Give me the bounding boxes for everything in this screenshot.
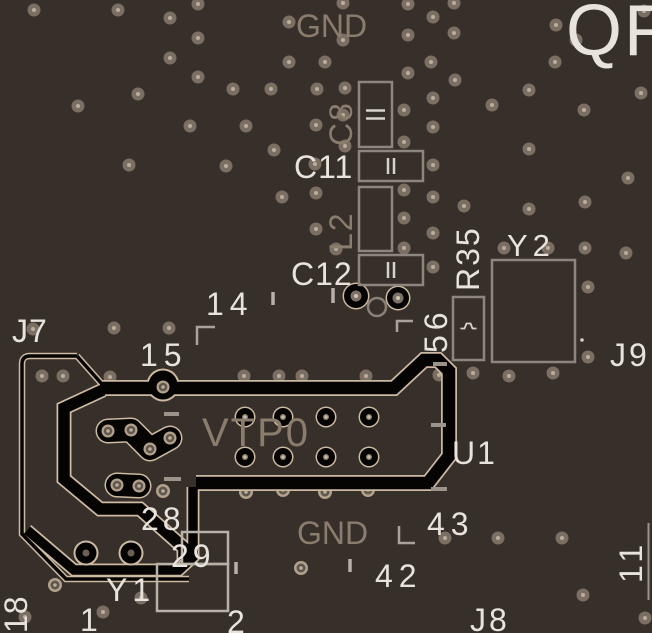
via-hole (314, 123, 318, 127)
via-hole (553, 60, 557, 64)
via-hole (431, 15, 435, 19)
silk-label-r35: R35 (450, 226, 486, 291)
via-hole (196, 36, 200, 40)
via-hole (554, 23, 558, 27)
via-hole (323, 60, 327, 64)
silk-label-j8: J8 (470, 602, 510, 633)
via-hole (168, 16, 172, 20)
via-hole (507, 374, 511, 378)
via-hole (406, 71, 410, 75)
via-hole (242, 374, 246, 378)
via-hole (137, 484, 141, 488)
via-hole (167, 326, 171, 330)
silk-label-j7: J7 (12, 313, 48, 349)
via-hole (196, 2, 200, 6)
via-hole (196, 75, 200, 79)
via-hole (643, 616, 647, 620)
via-hole (452, 31, 456, 35)
via-hole (161, 385, 165, 389)
via-hole (431, 265, 435, 269)
via-hole (341, 1, 345, 5)
silk-label-y2: Y2 (507, 228, 555, 263)
via-hole (431, 96, 435, 100)
via-hole (527, 88, 531, 92)
via-hole (431, 231, 435, 235)
silk-label-vtp0: VTP0 (202, 411, 310, 455)
silk-label-n14: 14 (206, 286, 254, 322)
silk-label-n29: 29 (171, 538, 215, 574)
silk-label-n2: 2 (227, 604, 245, 633)
silk-label-n42: 42 (375, 558, 423, 594)
via-hole (402, 140, 406, 144)
pad-hole (324, 455, 327, 458)
via-hole (453, 78, 457, 82)
via-hole (224, 164, 228, 168)
silk-label-j9: J9 (610, 337, 650, 373)
via-hole (300, 374, 304, 378)
via-hole (431, 163, 435, 167)
silk-label-gnd-top: GND (296, 8, 367, 44)
via-hole (108, 375, 112, 379)
via-hole (277, 374, 281, 378)
via-hole (626, 176, 630, 180)
silk-label-c11: C11 (294, 149, 353, 185)
via-hole (496, 536, 500, 540)
via-hole (129, 428, 133, 432)
pad-hole (367, 415, 370, 418)
via-hole (431, 125, 435, 129)
via-hole (583, 246, 587, 250)
via-hole (560, 536, 564, 540)
pcb-layout-view[interactable]: QFGNDC8C11L2C12R3556Y2J91415J7VTP0U1GND4… (0, 0, 652, 633)
via-hole (471, 371, 475, 375)
silk-label-gnd-bottom: GND (297, 515, 368, 551)
via-hole (406, 2, 410, 6)
via-hole (462, 204, 466, 208)
silk-label-n56: 56 (418, 307, 454, 353)
via-hole (287, 60, 291, 64)
silk-label-c12: C12 (291, 256, 353, 292)
pad-via-hole (396, 296, 400, 300)
via-hole (101, 610, 105, 614)
via-hole (429, 60, 433, 64)
via-hole (314, 227, 318, 231)
via-hole (61, 374, 65, 378)
silk-label-u1: U1 (452, 435, 497, 471)
via-hole (402, 216, 406, 220)
via-hole (106, 429, 110, 433)
silk-label-qf: QF (566, 0, 652, 71)
via-hole (40, 374, 44, 378)
via-hole (452, 1, 456, 5)
via-hole (168, 436, 172, 440)
pcb-board: QFGNDC8C11L2C12R3556Y2J91415J7VTP0U1GND4… (0, 0, 652, 633)
via-hole (315, 87, 319, 91)
via-hole (53, 583, 57, 587)
pad-core (83, 550, 90, 557)
via-hole (402, 246, 406, 250)
via-hole (406, 33, 410, 37)
via-hole (551, 371, 555, 375)
via-hole (299, 566, 303, 570)
silk-label-n1: 1 (80, 602, 98, 633)
pad-via-hole (354, 294, 358, 298)
via-hole (168, 56, 172, 60)
via-hole (586, 285, 590, 289)
silk-label-n28: 28 (141, 501, 185, 537)
silk-label-y1: Y1 (106, 572, 155, 608)
silk-label-n11: 11 (613, 540, 649, 583)
via-hole (402, 188, 406, 192)
via-hole (269, 87, 273, 91)
via-hole (244, 124, 248, 128)
via-hole (280, 195, 284, 199)
via-hole (188, 124, 192, 128)
silk-label-n18: 18 (0, 595, 34, 633)
via-hole (287, 20, 291, 24)
pad-hole (281, 455, 284, 458)
silk-label-l2: L2 (323, 211, 359, 251)
pad-hole (367, 455, 370, 458)
via-hole (639, 91, 643, 95)
via-hole (272, 148, 276, 152)
via-hole (624, 251, 628, 255)
via-hole (583, 200, 587, 204)
via-hole (490, 103, 494, 107)
pad-hole (243, 455, 246, 458)
via-hole (581, 593, 585, 597)
via-hole (527, 207, 531, 211)
via-hole (127, 163, 131, 167)
via-hole (364, 374, 368, 378)
via-hole (314, 191, 318, 195)
pad-hole (324, 415, 327, 418)
via-hole (231, 87, 235, 91)
via-hole (431, 195, 435, 199)
via-hole (32, 8, 36, 12)
silk-label-c8: C8 (323, 101, 359, 146)
via-hole (76, 104, 80, 108)
via-hole (586, 355, 590, 359)
pad-core (128, 550, 135, 557)
via-hole (527, 147, 531, 151)
via-hole (343, 86, 347, 90)
via-hole (582, 108, 586, 112)
via-hole (116, 8, 120, 12)
via-hole (402, 108, 406, 112)
via-hole (112, 326, 116, 330)
via-hole (161, 489, 165, 493)
via-hole (136, 92, 140, 96)
via-hole (148, 447, 152, 451)
via-hole (115, 483, 119, 487)
via-hole (502, 246, 506, 250)
silk-dot (580, 338, 584, 342)
silk-label-n43: 43 (427, 506, 475, 542)
silk-label-n15: 15 (140, 337, 188, 373)
